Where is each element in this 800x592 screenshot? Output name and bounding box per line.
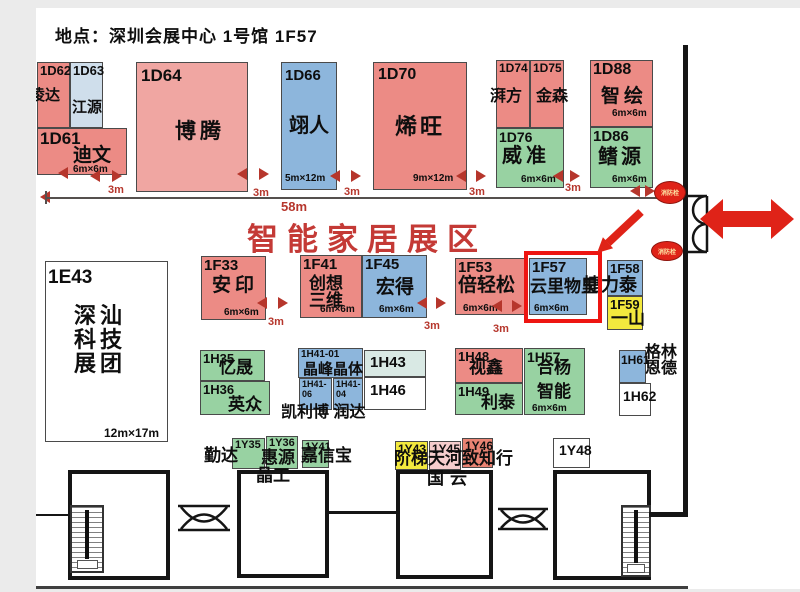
- aisle-arrow-icon: [436, 297, 446, 309]
- booth-id-label: 1D88: [593, 62, 631, 78]
- booth-id-label: 1Y35: [235, 440, 261, 451]
- booth-id-label: 04: [336, 390, 346, 399]
- booth-id-label: 1H43: [370, 355, 406, 370]
- overlay-text: 恩德: [645, 361, 677, 377]
- overlay-text: 阶梯天河致知行: [394, 450, 513, 467]
- wall: [45, 197, 668, 199]
- overlay-text: 勤达: [204, 447, 238, 464]
- booth-id-label: 1H41-01: [301, 350, 339, 360]
- booth-size-label: 6m×6m: [320, 305, 355, 315]
- booth-id-label: 1D86: [593, 129, 629, 144]
- booth-name: 晶峰晶体: [303, 362, 363, 378]
- booth-1H46: 1H46: [364, 377, 426, 410]
- booth-id-label: 1D75: [533, 62, 562, 74]
- aisle-arrow-icon: [512, 300, 522, 312]
- booth-name: 江源: [72, 100, 102, 116]
- dimension-label: 3m: [108, 185, 124, 196]
- booth-size-label: 6m×6m: [532, 404, 567, 414]
- booth-name: 烯旺: [395, 115, 445, 138]
- booth-id-label: 1H62: [623, 389, 656, 403]
- booth-size-label: 6m×6m: [612, 175, 647, 185]
- booth-id-label: 1Y48: [559, 443, 592, 457]
- fire-hydrant-badge: 消防栓: [654, 181, 686, 204]
- wall: [649, 512, 688, 517]
- aisle-arrow-icon: [553, 170, 563, 182]
- booth-1D61: 1D61迪文6m×6m: [37, 128, 127, 175]
- overlay-text: 国云: [427, 470, 473, 487]
- aisle-arrow-icon: [456, 170, 466, 182]
- stairs-icon: [621, 505, 651, 577]
- booth-size-label: 5m×12m: [285, 174, 325, 184]
- booth-1F33: 1F33安印6m×6m: [201, 256, 266, 320]
- booth-1E43: 1E43深汕科技展团12m×17m: [45, 261, 168, 442]
- booth-id-label: 1F45: [365, 257, 399, 272]
- aisle-arrow-icon: [492, 300, 502, 312]
- booth-1D64: 1D64博腾: [136, 62, 248, 192]
- overlay-text: 惠源: [261, 449, 295, 466]
- booth-name: 智绘: [601, 87, 647, 107]
- aisle-arrow-icon: [259, 168, 269, 180]
- room-outline: [237, 470, 329, 578]
- page-title: 地点：深圳会展中心 1号馆 1F57: [55, 22, 318, 47]
- booth-name: 英众: [228, 396, 262, 414]
- dimension-label: 3m: [424, 321, 440, 332]
- booth-1D74: 1D74湃方: [496, 60, 530, 128]
- booth-name: 忆晟: [219, 359, 253, 377]
- booth-name: 鳍源: [598, 147, 644, 168]
- booth-id-label: 1D70: [378, 67, 416, 83]
- aisle-arrow-icon: [630, 185, 640, 197]
- booth-id-label: 1H46: [370, 383, 406, 398]
- overlay-text: 格林: [645, 345, 677, 361]
- booth-id-label: 1D62: [40, 64, 71, 77]
- booth-size-label: 6m×6m: [224, 308, 259, 318]
- booth-name: 金森: [536, 89, 568, 106]
- booth-1D66: 1D66翊人5m×12m: [281, 62, 337, 190]
- booth-size-label: 12m×17m: [104, 427, 159, 439]
- booth-1H62: 1H62: [619, 383, 651, 416]
- overlay-text: 凯利博 润达: [281, 405, 365, 421]
- booth-1D88: 1D88智绘6m×6m: [590, 60, 653, 127]
- booth-1H35: 1H35忆晟: [200, 350, 265, 381]
- aisle-arrow-icon: [417, 297, 427, 309]
- booth-1D63: 1D63江源: [70, 62, 103, 128]
- booth-id-label: 1F41: [303, 257, 337, 272]
- aisle-arrow-icon: [476, 170, 486, 182]
- booth-name: 视鑫: [469, 359, 503, 377]
- booth-name: 翊人: [289, 116, 329, 137]
- booth-name: 湃方: [490, 89, 522, 106]
- booth-1H48: 1H48视鑫: [455, 348, 523, 383]
- booth-name: 倍轻松: [458, 276, 515, 296]
- booth-id-label: 1F53: [458, 260, 492, 275]
- page-margin-left: [0, 0, 36, 592]
- stairs-landing-icon: [77, 560, 98, 569]
- booth-1H36: 1H36英众: [200, 381, 270, 415]
- zone-banner: 智能家居展区: [247, 214, 487, 259]
- dimension-label: 3m: [493, 324, 509, 335]
- booth-size-label: 6m×6m: [612, 109, 647, 119]
- booth-id-label: 1H41-: [336, 380, 361, 389]
- booth-1H41-01: 1H41-01晶峰晶体: [298, 348, 363, 378]
- aisle-arrow-icon: [330, 170, 340, 182]
- booth-1H43: 1H43: [364, 350, 426, 377]
- aisle-arrow-icon: [90, 170, 100, 182]
- booth-name: 科技: [74, 328, 126, 351]
- booth-name: 智能: [537, 383, 571, 401]
- booth-id-label: 1D66: [285, 68, 321, 83]
- floorplan-page: 1D62凌达1D63江源1D61迪文6m×6m1D64博腾1D66翊人5m×12…: [0, 0, 800, 592]
- booth-size-label: 6m×6m: [521, 175, 556, 185]
- booth-name: 展团: [74, 352, 126, 375]
- booth-name: 深汕: [74, 304, 126, 327]
- aisle-arrow-icon: [351, 170, 361, 182]
- booth-id-label: 06: [302, 390, 312, 399]
- booth-name: 博腾: [175, 121, 225, 143]
- booth-size-label: 9m×12m: [413, 174, 453, 184]
- wall: [36, 514, 68, 516]
- booth-id-label: 1E43: [48, 268, 92, 287]
- booth-id-label: 1D76: [499, 130, 532, 144]
- booth-1H61: 1H61: [619, 350, 646, 383]
- aisle-arrow-icon: [112, 170, 122, 182]
- booth-1Y48: 1Y48: [553, 438, 590, 468]
- stairs-landing-icon: [627, 564, 645, 573]
- fire-hydrant-badge: 消防栓: [651, 241, 683, 261]
- booth-1D86: 1D86鳍源6m×6m: [590, 127, 653, 188]
- booth-1F41: 1F41创想三维6m×6m: [300, 255, 362, 318]
- stairs-rail-icon: [85, 510, 89, 559]
- floorplan-map: 1D62凌达1D63江源1D61迪文6m×6m1D64博腾1D66翊人5m×12…: [0, 0, 800, 592]
- booth-name: 合杨: [537, 359, 571, 377]
- aisle-arrow-icon: [58, 167, 68, 179]
- stairs-rail-icon: [634, 510, 638, 563]
- aisle-arrow-icon: [237, 168, 247, 180]
- booth-name: 威准: [502, 146, 550, 167]
- booth-name: 利泰: [481, 394, 515, 412]
- booth-id-label: 1F33: [204, 258, 238, 273]
- booth-id-label: 1D74: [499, 62, 528, 74]
- booth-1F59: 1F59一山: [607, 296, 643, 330]
- stairs-icon: [70, 505, 104, 573]
- booth-id-label: 1H41-: [302, 380, 327, 389]
- booth-name: 宏得: [376, 278, 414, 298]
- aisle-arrow-icon: [278, 297, 288, 309]
- booth-1D62: 1D62凌达: [37, 62, 70, 128]
- wall: [329, 511, 397, 514]
- overlay-text: 嘉信宝: [301, 447, 352, 464]
- aisle-arrow-icon: [570, 170, 580, 182]
- booth-size-label: 6m×6m: [379, 305, 414, 315]
- overlay-text: 晶工: [256, 467, 290, 484]
- dimension-label: 3m: [268, 317, 284, 328]
- booth-1H49: 1H49利泰: [455, 383, 523, 415]
- booth-id-label: 1D63: [73, 64, 104, 77]
- booth-name: 安印: [212, 276, 258, 296]
- booth-id-label: 1D64: [141, 67, 182, 84]
- page-margin-top: [0, 0, 800, 8]
- booth-id-label: 1F58: [610, 262, 640, 275]
- booth-1D70: 1D70烯旺9m×12m: [373, 62, 467, 190]
- booth-1H57: 1H57合杨智能6m×6m: [524, 348, 585, 415]
- booth-1D75: 1D75金森: [530, 60, 564, 128]
- booth-name: 一山: [611, 310, 645, 328]
- dimension-label: 3m: [565, 183, 581, 194]
- aisle-arrow-icon: [257, 297, 267, 309]
- dimension-label: 58m: [281, 200, 307, 213]
- wall: [45, 191, 47, 204]
- booth-name: 迪文: [73, 146, 111, 166]
- highlight-box-1F57: [524, 251, 602, 323]
- wall: [683, 45, 688, 517]
